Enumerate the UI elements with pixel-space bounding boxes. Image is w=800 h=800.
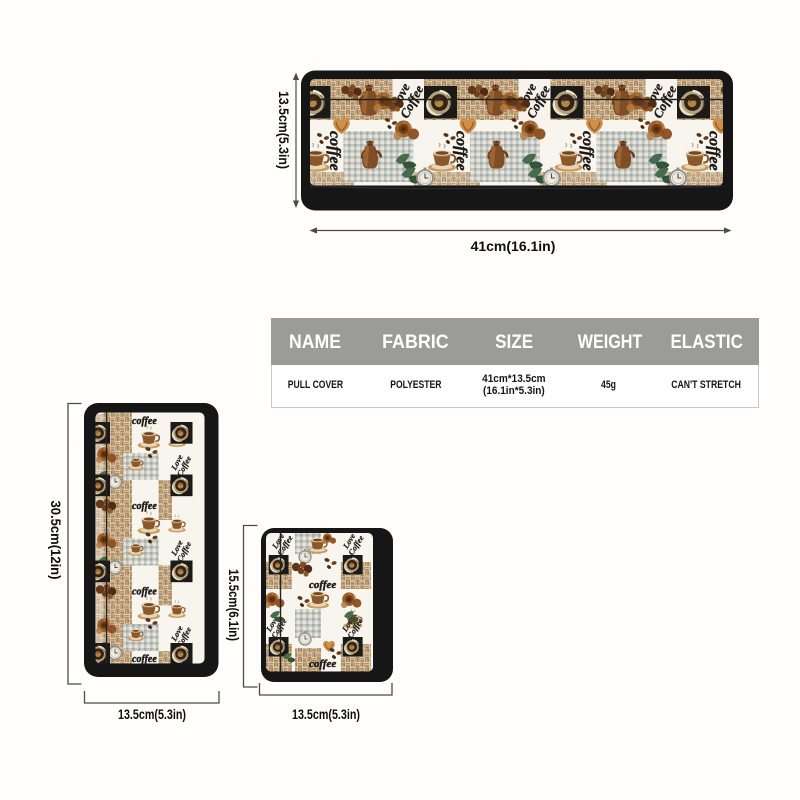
svg-text:41cm(16.1in): 41cm(16.1in) bbox=[471, 238, 556, 254]
svg-text:13.5cm(5.3in): 13.5cm(5.3in) bbox=[118, 706, 186, 722]
svg-text:13.5cm(5.3in): 13.5cm(5.3in) bbox=[292, 706, 360, 722]
svg-text:15.5cm(6.1in): 15.5cm(6.1in) bbox=[226, 569, 242, 641]
svg-text:30.5cm(12in): 30.5cm(12in) bbox=[48, 501, 64, 580]
svg-text:13.5cm(5.3in): 13.5cm(5.3in) bbox=[276, 91, 292, 169]
